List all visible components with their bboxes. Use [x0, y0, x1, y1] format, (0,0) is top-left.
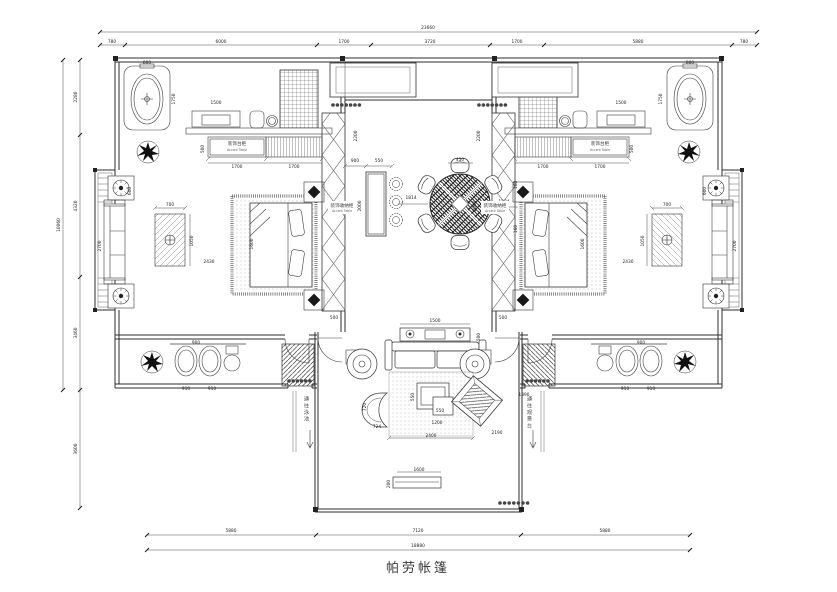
- dining-chair: [451, 236, 469, 250]
- dimension-label: 2430: [623, 259, 634, 265]
- balcony-sofa: [104, 200, 125, 284]
- dimension-label: 3600: [73, 443, 79, 454]
- plant: [141, 351, 163, 373]
- console-label-en: Accent Table: [485, 209, 505, 213]
- dimension-label: 2000: [472, 200, 478, 211]
- dimension-label: 780: [108, 39, 116, 45]
- dimension-label: 2400: [426, 433, 437, 439]
- dimension-label: 23660: [421, 25, 435, 31]
- passage-label-left: 通往泳池: [303, 395, 309, 423]
- dimension-label: 550: [410, 393, 416, 401]
- dimension-label: 600: [127, 187, 133, 195]
- dimension-label: 700: [166, 202, 174, 208]
- side-table: [153, 206, 190, 266]
- basins: [170, 344, 246, 376]
- dimension-label: 600: [702, 187, 708, 195]
- dimension-label: 1750: [658, 93, 664, 104]
- dimension-label: 780: [740, 39, 748, 45]
- dimension-label: 1814: [406, 195, 417, 201]
- dimension-label: 910: [182, 386, 190, 392]
- column-marker: [340, 56, 345, 61]
- dimension-label: 5880: [226, 528, 237, 534]
- dimension-label: 2200: [476, 130, 482, 141]
- dimension-label: 700: [663, 202, 671, 208]
- dimension-label: 1050: [189, 235, 195, 246]
- balcony-lamp-table: [108, 284, 134, 308]
- dimension-label: 2000: [357, 200, 363, 211]
- bathroom-wall: [115, 335, 317, 339]
- floor-plan-page: { "title": "帕劳帐篷", "colors": { "line": "…: [0, 0, 837, 592]
- dimension-label: 18880: [411, 543, 425, 549]
- dimension-label: 1700: [538, 164, 549, 170]
- accent-table-label-en: Accent Table: [590, 148, 610, 152]
- dimension-label: 550: [375, 158, 383, 164]
- column-marker: [113, 56, 118, 61]
- dimension-label: 1700: [595, 164, 606, 170]
- dimension-label: 900: [637, 340, 645, 346]
- dimension-label: 1500: [616, 100, 627, 106]
- dimension-label: 5880: [633, 39, 644, 45]
- console-label-zh: 装饰收纳柜: [331, 202, 354, 209]
- dimension-label: 724: [373, 424, 381, 430]
- skylight-panel-right: [492, 63, 578, 97]
- dimension-label: 1600: [580, 238, 586, 249]
- dimension-label: 6000: [216, 39, 227, 45]
- nightstand: [304, 182, 324, 202]
- dimension-label: 1700: [512, 39, 523, 45]
- dimension-label: 450: [456, 157, 464, 163]
- dimension-label: 2700: [97, 240, 103, 251]
- bar-stool: [390, 178, 403, 191]
- dimension-label: 1600: [249, 238, 255, 249]
- accent-table-label-en: Accent Table: [227, 148, 247, 152]
- round-chair-left: [346, 349, 377, 379]
- dimension-label: 1700: [339, 39, 350, 45]
- accent-table-label-zh: 装饰台柜: [591, 140, 610, 147]
- dimension-label: 200: [386, 480, 392, 488]
- dimension-label: 1200: [432, 420, 443, 426]
- dimension-label: 1500: [430, 318, 441, 324]
- dimension-label: 1600: [414, 467, 425, 473]
- dimension-label: 7120: [413, 528, 424, 534]
- dimension-label: 720: [362, 403, 368, 411]
- dimension-label: 900: [351, 158, 359, 164]
- dimension-label: 2430: [204, 259, 215, 265]
- dimension-label: 1500: [211, 100, 222, 106]
- entry-step: [387, 436, 475, 488]
- plant: [137, 141, 159, 163]
- dimension-label: 2190: [492, 430, 503, 436]
- dimension-label: 910: [621, 386, 629, 392]
- dimension-label: 1700: [232, 164, 243, 170]
- dimension-label: 1050: [640, 235, 646, 246]
- dimension-label: 160: [513, 225, 519, 233]
- dimension-label: 10060: [56, 218, 62, 232]
- dimension-label: 500: [629, 145, 635, 153]
- bar-stool: [390, 196, 403, 209]
- accent-table-label-zh: 装饰台柜: [228, 140, 247, 147]
- dimension-label: 2200: [353, 130, 359, 141]
- bar-stool: [390, 214, 403, 227]
- dimension-label: 910: [208, 386, 216, 392]
- bed-area: [232, 196, 316, 294]
- dimension-label: 3460: [73, 327, 79, 338]
- shower-enclosure: [280, 70, 318, 128]
- drawing-title: 帕劳帐篷: [386, 560, 450, 576]
- dimension-label: 500: [476, 333, 482, 341]
- passage-label-right: 通往观景台: [526, 395, 532, 430]
- dimension-label: 800: [686, 60, 694, 66]
- floor-plan-svg: 2366078060001700372017005880780588071205…: [0, 0, 837, 592]
- dimension-label: 2280: [73, 91, 79, 102]
- bathtub: [124, 64, 170, 130]
- dimension-label: 1750: [171, 93, 177, 104]
- dimension-label: 910: [647, 386, 655, 392]
- dimension-label: 550: [436, 408, 444, 414]
- dimension-label: 2700: [732, 240, 738, 251]
- dimension-label: 800: [143, 60, 151, 66]
- dimension-label: 500: [330, 315, 338, 321]
- dimension-label: 500: [499, 315, 507, 321]
- dimension-label: 4320: [73, 200, 79, 211]
- dimension-label: 5880: [600, 528, 611, 534]
- dimension-label: 500: [200, 145, 206, 153]
- console-label-en: Accent Table: [332, 209, 352, 213]
- console-label-zh: 装饰收纳柜: [484, 202, 507, 209]
- dimension-label: 3720: [425, 39, 436, 45]
- dimension-label: 900: [192, 340, 200, 346]
- skylight-panel-left: [330, 63, 416, 97]
- dimension-label: 160: [513, 181, 519, 189]
- dimension-label: 1700: [289, 164, 300, 170]
- nightstand: [304, 290, 324, 310]
- accent-table-cabinet: [206, 137, 324, 163]
